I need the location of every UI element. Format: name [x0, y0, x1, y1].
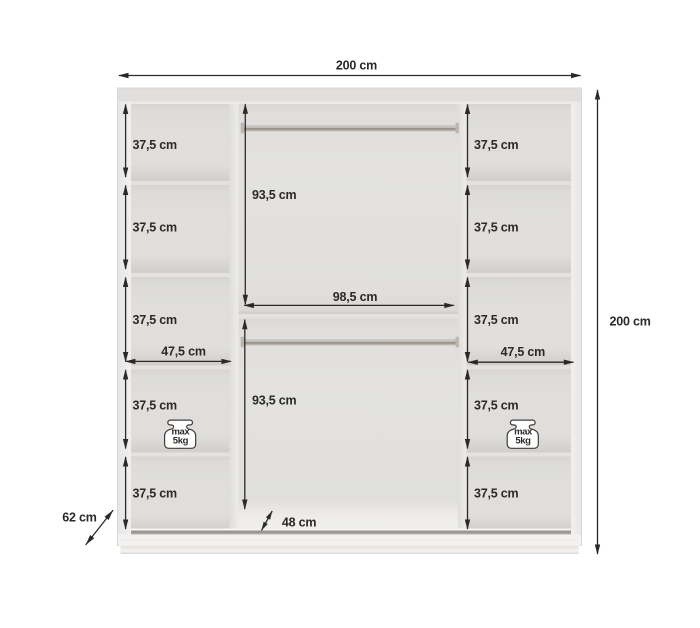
svg-text:5kg: 5kg — [515, 436, 531, 447]
svg-text:98,5 cm: 98,5 cm — [333, 290, 378, 304]
svg-text:62 cm: 62 cm — [62, 511, 97, 525]
svg-text:37,5 cm: 37,5 cm — [474, 221, 519, 235]
svg-text:37,5 cm: 37,5 cm — [474, 138, 519, 152]
svg-text:5kg: 5kg — [173, 436, 189, 447]
svg-text:37,5 cm: 37,5 cm — [133, 313, 178, 327]
svg-text:37,5 cm: 37,5 cm — [133, 399, 178, 413]
svg-text:200 cm: 200 cm — [336, 59, 377, 73]
svg-text:47,5 cm: 47,5 cm — [161, 344, 206, 358]
svg-text:37,5 cm: 37,5 cm — [133, 221, 178, 235]
svg-text:47,5 cm: 47,5 cm — [501, 345, 546, 359]
svg-text:48 cm: 48 cm — [282, 515, 317, 529]
svg-text:37,5 cm: 37,5 cm — [474, 486, 519, 500]
svg-text:93,5 cm: 93,5 cm — [252, 394, 297, 408]
svg-text:93,5 cm: 93,5 cm — [252, 188, 297, 202]
svg-text:37,5 cm: 37,5 cm — [133, 486, 178, 500]
svg-text:37,5 cm: 37,5 cm — [474, 313, 519, 327]
svg-text:37,5 cm: 37,5 cm — [133, 138, 178, 152]
svg-text:200 cm: 200 cm — [610, 315, 651, 329]
svg-text:37,5 cm: 37,5 cm — [474, 399, 519, 413]
